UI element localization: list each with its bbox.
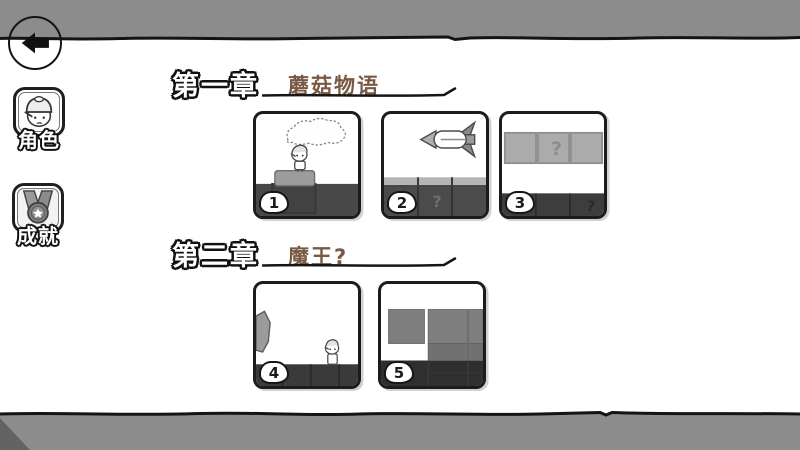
- level-number-badge: 4: [259, 361, 289, 384]
- chapter-2-heading: 第二章: [172, 234, 259, 273]
- chapter-1-underline: [262, 86, 462, 100]
- level-card-5[interactable]: 5: [378, 281, 486, 389]
- sidebar-label-character: 角色: [9, 124, 69, 153]
- top-bar: [0, 0, 800, 46]
- sidebar-button-character[interactable]: 角色: [9, 87, 69, 153]
- sidebar-label-achievements: 成就: [8, 220, 68, 249]
- chapter-2-underline: [262, 256, 462, 270]
- sidebar-button-achievements[interactable]: 成就: [8, 183, 68, 249]
- level-number-badge: 2: [387, 191, 417, 214]
- level-card-3[interactable]: ? ? 3: [499, 111, 607, 219]
- level-card-2[interactable]: 顶我 ? 2: [381, 111, 489, 219]
- left-arrow-icon: [16, 27, 54, 59]
- level-card-1[interactable]: 1: [253, 111, 361, 219]
- level-select-screen: 角色 成就 第一章 蘑菇物语: [0, 0, 800, 450]
- back-button[interactable]: [8, 16, 62, 70]
- level-number-badge: 3: [505, 191, 535, 214]
- level-3-question-block: ?: [540, 138, 573, 160]
- level-card-4[interactable]: 4: [253, 281, 361, 389]
- level-number-badge: 1: [259, 191, 289, 214]
- level-number-badge: 5: [384, 361, 414, 384]
- level-2-question-block: ?: [422, 192, 452, 211]
- chapter-1-heading: 第一章: [172, 64, 259, 103]
- bottom-bar: [0, 404, 800, 450]
